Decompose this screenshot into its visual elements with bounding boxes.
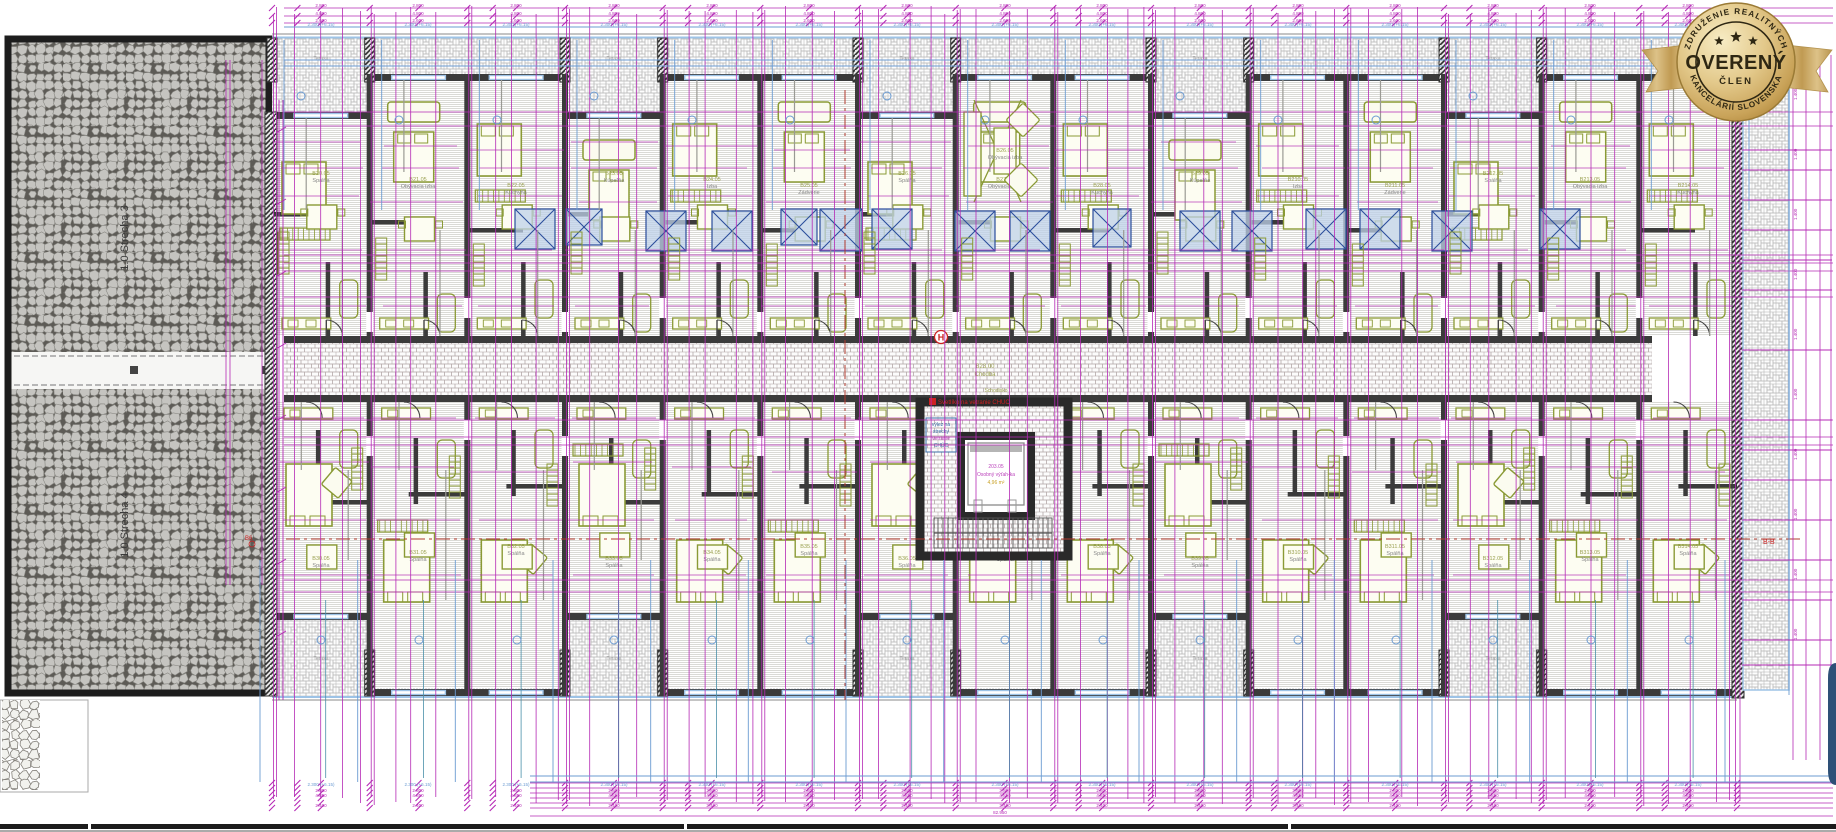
svg-text:2.300 (+6.15): 2.300 (+6.15) <box>503 782 530 787</box>
svg-text:Terasa: Terasa <box>606 656 621 662</box>
svg-text:B29.05: B29.05 <box>1191 171 1208 177</box>
svg-text:2.300 (+6.15): 2.300 (+6.15) <box>308 22 335 27</box>
svg-text:4.800: 4.800 <box>608 11 620 16</box>
svg-text:Terasa: Terasa <box>1485 56 1500 62</box>
svg-text:Terasa: Terasa <box>313 56 328 62</box>
svg-text:B313.05: B313.05 <box>1580 550 1601 556</box>
svg-text:2.400: 2.400 <box>1096 803 1108 808</box>
svg-text:B23.05: B23.05 <box>605 171 622 177</box>
svg-text:4.850: 4.850 <box>1389 793 1401 798</box>
svg-text:B28.05: B28.05 <box>1093 183 1110 189</box>
svg-text:Kuchyňa: Kuchyňa <box>505 190 527 196</box>
svg-text:2.300 (+6.15): 2.300 (+6.15) <box>699 782 726 787</box>
svg-text:4.800: 4.800 <box>412 11 424 16</box>
svg-text:Terasa: Terasa <box>899 56 914 62</box>
svg-text:Obývacia izba: Obývacia izba <box>1573 184 1608 190</box>
svg-text:2.300 (+6.15): 2.300 (+6.15) <box>1675 782 1702 787</box>
svg-text:2.400: 2.400 <box>1292 803 1304 808</box>
svg-text:2.300 (+6.15): 2.300 (+6.15) <box>699 22 726 27</box>
svg-text:B213.05: B213.05 <box>1580 177 1601 183</box>
svg-text:2.800: 2.800 <box>901 3 913 8</box>
svg-text:výlez na: výlez na <box>932 422 951 428</box>
svg-text:Terasa: Terasa <box>313 656 328 662</box>
svg-text:Spálňa: Spálňa <box>800 551 818 557</box>
svg-text:4.800: 4.800 <box>1584 11 1596 16</box>
svg-text:Spálňa: Spálňa <box>1289 557 1307 563</box>
svg-text:Terasa: Terasa <box>1192 656 1207 662</box>
svg-text:2.300 (+6.15): 2.300 (+6.15) <box>601 22 628 27</box>
svg-text:2.400: 2.400 <box>706 803 718 808</box>
svg-text:1.400: 1.400 <box>1793 208 1798 220</box>
svg-text:4.850: 4.850 <box>1682 793 1694 798</box>
svg-text:2.300 (+6.15): 2.300 (+6.15) <box>992 782 1019 787</box>
svg-text:4,96 m²: 4,96 m² <box>988 480 1005 486</box>
svg-text:B214.05: B214.05 <box>1678 183 1699 189</box>
svg-text:Spálňa: Spálňa <box>409 557 427 563</box>
svg-text:B34.05: B34.05 <box>703 550 720 556</box>
svg-text:2.400: 2.400 <box>510 803 522 808</box>
svg-text:2.300 (+6.15): 2.300 (+6.15) <box>1480 782 1507 787</box>
svg-text:Spálňa: Spálňa <box>898 563 916 569</box>
svg-text:Zádverie: Zádverie <box>798 190 819 196</box>
svg-text:4.800: 4.800 <box>999 11 1011 16</box>
svg-text:B21.05: B21.05 <box>409 177 426 183</box>
svg-text:2.300 (+6.15): 2.300 (+6.15) <box>405 22 432 27</box>
svg-text:1.400: 1.400 <box>1793 268 1798 280</box>
svg-text:2.300 (+6.15): 2.300 (+6.15) <box>1480 22 1507 27</box>
svg-text:H: H <box>938 333 945 343</box>
svg-text:4.800: 4.800 <box>901 11 913 16</box>
svg-text:2.300 (+6.15): 2.300 (+6.15) <box>1089 22 1116 27</box>
svg-text:2.300 (+6.15): 2.300 (+6.15) <box>796 782 823 787</box>
svg-text:B312.05: B312.05 <box>1483 556 1504 562</box>
svg-text:2.800: 2.800 <box>1389 3 1401 8</box>
svg-text:2.400: 2.400 <box>1389 803 1401 808</box>
svg-text:1.0 Strecha 3: 1.0 Strecha 3 <box>119 205 131 270</box>
svg-text:4.800: 4.800 <box>706 11 718 16</box>
svg-text:strechy: strechy <box>933 429 950 435</box>
svg-text:2.800: 2.800 <box>1682 3 1694 8</box>
svg-text:2.800: 2.800 <box>608 3 620 8</box>
svg-text:B22.05: B22.05 <box>507 183 524 189</box>
svg-text:2.300 (+6.15): 2.300 (+6.15) <box>1382 782 1409 787</box>
svg-text:Terasa: Terasa <box>899 656 914 662</box>
svg-text:2.300 (+6.15): 2.300 (+6.15) <box>1577 782 1604 787</box>
svg-text:2.300 (+6.15): 2.300 (+6.15) <box>1187 22 1214 27</box>
svg-text:2.400: 2.400 <box>1584 803 1596 808</box>
svg-text:1.400: 1.400 <box>1793 328 1798 340</box>
svg-text:4.800: 4.800 <box>315 11 327 16</box>
svg-text:2.800: 2.800 <box>999 3 1011 8</box>
svg-text:4.800: 4.800 <box>510 11 522 16</box>
svg-text:B310.05: B310.05 <box>1288 550 1309 556</box>
svg-text:2.300 (+6.15): 2.300 (+6.15) <box>894 782 921 787</box>
svg-text:Terasa: Terasa <box>606 56 621 62</box>
svg-text:B36.05: B36.05 <box>898 556 915 562</box>
svg-text:B-B´: B-B´ <box>1763 539 1777 546</box>
svg-text:2.400: 2.400 <box>608 803 620 808</box>
svg-text:2.800: 2.800 <box>1584 3 1596 8</box>
svg-text:B212.05: B212.05 <box>1483 171 1504 177</box>
svg-text:CHÚC: CHÚC <box>934 442 949 449</box>
svg-text:2.400: 2.400 <box>1682 803 1694 808</box>
svg-text:Obývacia izba: Obývacia izba <box>401 184 436 190</box>
svg-text:1.400: 1.400 <box>1793 88 1798 100</box>
svg-text:2.300 (+6.15): 2.300 (+6.15) <box>1089 782 1116 787</box>
svg-text:4.800: 4.800 <box>1682 11 1694 16</box>
svg-text:2.300 (+6.15): 2.300 (+6.15) <box>992 22 1019 27</box>
svg-text:1.400: 1.400 <box>1793 568 1798 580</box>
svg-text:4.850: 4.850 <box>1584 793 1596 798</box>
svg-text:4.850: 4.850 <box>999 793 1011 798</box>
svg-text:B32.05: B32.05 <box>507 544 524 550</box>
svg-text:B23.00: B23.00 <box>975 364 995 370</box>
svg-text:Kuchyňa: Kuchyňa <box>1677 190 1699 196</box>
svg-text:2.300 (+6.15): 2.300 (+6.15) <box>1577 22 1604 27</box>
svg-text:4.850: 4.850 <box>1487 793 1499 798</box>
svg-text:Kuchyňa: Kuchyňa <box>1091 190 1113 196</box>
svg-text:2.300 (+6.15): 2.300 (+6.15) <box>1382 22 1409 27</box>
svg-text:B31.05: B31.05 <box>409 550 426 556</box>
svg-text:Spálňa: Spálňa <box>1191 563 1209 569</box>
svg-text:Spálňa: Spálňa <box>1484 178 1502 184</box>
svg-text:2.300 (+6.15): 2.300 (+6.15) <box>1285 782 1312 787</box>
svg-text:2.800: 2.800 <box>510 3 522 8</box>
svg-text:Spálňa: Spálňa <box>605 563 623 569</box>
svg-text:B210.05: B210.05 <box>1288 177 1309 183</box>
svg-text:Spálňa: Spálňa <box>1679 551 1697 557</box>
svg-text:203.05: 203.05 <box>988 464 1004 470</box>
svg-text:Spálňa: Spálňa <box>312 178 330 184</box>
svg-text:4.850: 4.850 <box>608 793 620 798</box>
svg-text:Chodba: Chodba <box>974 372 996 378</box>
svg-text:1.0 Strecha 4: 1.0 Strecha 4 <box>119 492 131 557</box>
svg-text:2.800: 2.800 <box>1292 3 1304 8</box>
svg-text:2.800: 2.800 <box>1194 3 1206 8</box>
svg-text:4.850: 4.850 <box>412 793 424 798</box>
svg-text:B26.05: B26.05 <box>898 171 915 177</box>
svg-text:4.850: 4.850 <box>803 793 815 798</box>
svg-text:Schodisko: Schodisko <box>984 388 1007 394</box>
svg-text:2.300 (+6.15): 2.300 (+6.15) <box>796 22 823 27</box>
svg-text:2.800: 2.800 <box>1487 3 1499 8</box>
svg-text:2.800: 2.800 <box>412 3 424 8</box>
svg-text:2.300 (+6.15): 2.300 (+6.15) <box>1187 782 1214 787</box>
svg-text:4.850: 4.850 <box>901 793 913 798</box>
svg-text:4.800: 4.800 <box>1096 11 1108 16</box>
svg-text:4.850: 4.850 <box>1292 793 1304 798</box>
svg-text:4.850: 4.850 <box>1194 793 1206 798</box>
svg-text:Kúpeľňa: Kúpeľňa <box>1190 178 1212 184</box>
svg-text:B38.05: B38.05 <box>1093 544 1110 550</box>
svg-text:4.800: 4.800 <box>1194 11 1206 16</box>
svg-text:2.400: 2.400 <box>1194 803 1206 808</box>
svg-text:B25.05: B25.05 <box>800 183 817 189</box>
svg-text:4.800: 4.800 <box>1487 11 1499 16</box>
svg-text:2.800: 2.800 <box>315 3 327 8</box>
svg-text:Izba: Izba <box>707 184 718 190</box>
svg-text:Terasa: Terasa <box>1192 56 1207 62</box>
svg-text:Spálňa: Spálňa <box>1484 563 1502 569</box>
svg-text:Spálňa: Spálňa <box>507 551 525 557</box>
svg-text:1.400: 1.400 <box>1793 388 1798 400</box>
svg-text:2.400: 2.400 <box>999 803 1011 808</box>
svg-text:2.800: 2.800 <box>706 3 718 8</box>
svg-text:2.300 (+6.15): 2.300 (+6.15) <box>894 22 921 27</box>
svg-text:Zádverie: Zádverie <box>1384 190 1405 196</box>
svg-text:4.850: 4.850 <box>510 793 522 798</box>
svg-text:Obývacia izba: Obývacia izba <box>988 155 1023 161</box>
svg-text:Spálňa: Spálňa <box>312 563 330 569</box>
svg-text:2.400: 2.400 <box>901 803 913 808</box>
svg-text:Terasa: Terasa <box>1485 656 1500 662</box>
svg-text:82.950: 82.950 <box>993 810 1007 815</box>
svg-text:B33.05: B33.05 <box>605 556 622 562</box>
svg-text:ČLEN: ČLEN <box>1719 75 1753 87</box>
svg-text:2.400: 2.400 <box>803 803 815 808</box>
svg-text:Svetlíko na vetranie CHUC: Svetlíko na vetranie CHUC <box>938 400 1010 406</box>
svg-text:Spálňa: Spálňa <box>898 178 916 184</box>
svg-text:Spálňa: Spálňa <box>1581 557 1599 563</box>
svg-text:B24.05: B24.05 <box>703 177 720 183</box>
svg-text:B35.05: B35.05 <box>800 544 817 550</box>
svg-text:4.800: 4.800 <box>1292 11 1304 16</box>
svg-text:B314.05: B314.05 <box>1678 544 1699 550</box>
svg-text:1.400: 1.400 <box>1793 508 1798 520</box>
svg-text:2.300 (+6.15): 2.300 (+6.15) <box>601 782 628 787</box>
svg-text:2.400: 2.400 <box>315 803 327 808</box>
svg-text:2.300 (+6.15): 2.300 (+6.15) <box>308 782 335 787</box>
svg-text:4.850: 4.850 <box>706 793 718 798</box>
svg-text:4.800: 4.800 <box>803 11 815 16</box>
svg-text:B39.05: B39.05 <box>1191 556 1208 562</box>
svg-text:2.300 (+6.15): 2.300 (+6.15) <box>503 22 530 27</box>
svg-text:2.400: 2.400 <box>1487 803 1499 808</box>
svg-text:Kúpeľňa: Kúpeľňa <box>604 178 626 184</box>
svg-text:2.300 (+6.15): 2.300 (+6.15) <box>1285 22 1312 27</box>
svg-text:4.800: 4.800 <box>1389 11 1401 16</box>
svg-text:Spálňa: Spálňa <box>703 557 721 563</box>
svg-text:2.400: 2.400 <box>412 803 424 808</box>
svg-text:1.400: 1.400 <box>1793 628 1798 640</box>
svg-text:4.850: 4.850 <box>315 793 327 798</box>
svg-text:2.300 (+6.15): 2.300 (+6.15) <box>405 782 432 787</box>
svg-text:Spálňa: Spálňa <box>1093 551 1111 557</box>
svg-text:B26.05: B26.05 <box>996 148 1013 154</box>
svg-text:2.800: 2.800 <box>803 3 815 8</box>
svg-text:OVERENÝ: OVERENÝ <box>1685 50 1786 74</box>
svg-text:4.850: 4.850 <box>1096 793 1108 798</box>
svg-text:2.800: 2.800 <box>1096 3 1108 8</box>
